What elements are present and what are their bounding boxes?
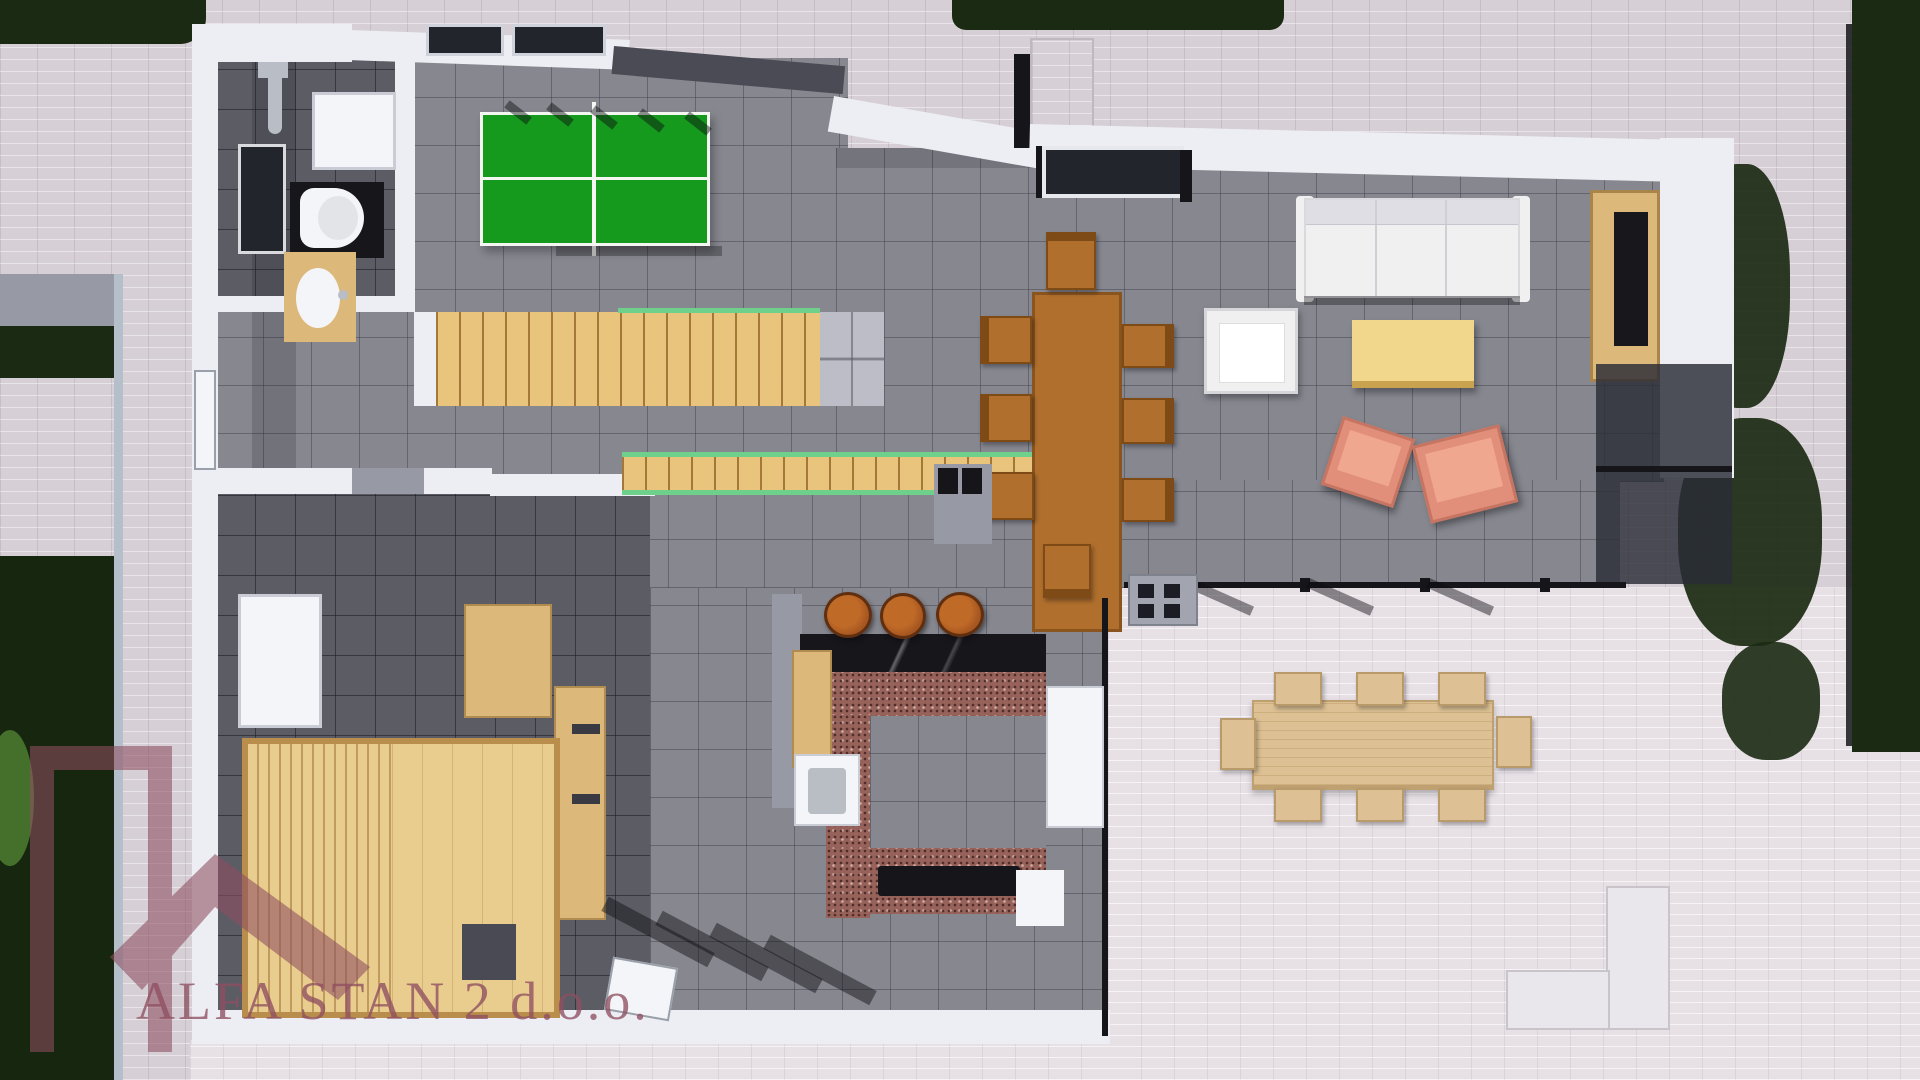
clerestory-window-1 <box>426 24 504 56</box>
kitchen-tall-cabinet <box>792 650 832 768</box>
outdoor-dining-table <box>1252 700 1494 790</box>
vanity-basin <box>296 268 340 328</box>
closet-handle-1 <box>572 724 600 734</box>
stair-glass-edge <box>618 308 820 313</box>
watermark-company-name: ALFA STAN 2 d.o.o. <box>136 970 650 1032</box>
bar-stool-3 <box>936 592 984 637</box>
tv-screen <box>1614 212 1648 346</box>
hedge-top-middle <box>952 0 1284 30</box>
kitchen-appliance-white <box>1016 870 1064 926</box>
vanity-faucet <box>338 290 348 300</box>
bar-counter <box>800 634 1046 672</box>
hedge-top-left <box>0 0 206 44</box>
left-door <box>194 370 216 470</box>
outdoor-stool-top-3 <box>1438 672 1486 706</box>
ivy-bush-3 <box>1722 642 1820 760</box>
fireplace-vent-1 <box>938 468 958 494</box>
block-wall-top <box>192 468 492 494</box>
pingpong-net <box>592 102 596 256</box>
outdoor-stool-bottom-2 <box>1356 788 1404 822</box>
bar-stool-2 <box>880 593 926 639</box>
dining-chair-right-2 <box>1122 398 1174 444</box>
toilet-seat <box>318 196 358 240</box>
floor-plan-render: ALFA STAN 2 d.o.o. <box>0 0 1920 1080</box>
outdoor-stool-bottom-1 <box>1274 788 1322 822</box>
pingpong-shadow <box>556 246 722 256</box>
outdoor-stool-left <box>1220 718 1256 770</box>
kitchen-counter-top <box>826 672 1046 716</box>
dining-chair-right-1 <box>1122 324 1174 368</box>
outdoor-stool-top-1 <box>1274 672 1322 706</box>
planter-bench-horizontal <box>1506 970 1610 1030</box>
skylight-endcap-right <box>1180 150 1192 202</box>
dining-chair-left-2 <box>980 394 1032 442</box>
dining-chair-bottom <box>1043 544 1091 598</box>
dining-chair-top <box>1046 232 1096 290</box>
coffee-table <box>1352 320 1474 388</box>
stair-landing <box>820 312 884 406</box>
outdoor-stool-top-2 <box>1356 672 1404 706</box>
kitchen-inner-floor <box>870 716 1046 850</box>
hedge-left <box>0 326 118 378</box>
clerestory-window-2 <box>512 24 606 56</box>
planter-bench-vertical <box>1606 886 1670 1030</box>
closet-handle-2 <box>572 794 600 804</box>
staircase <box>436 312 820 406</box>
kitchen-sink-basin <box>808 768 846 814</box>
washing-machine <box>312 92 396 170</box>
stairwell-glass-edge-1 <box>622 452 1042 457</box>
bathroom-mirror <box>238 144 286 254</box>
bar-stool-1 <box>824 592 872 638</box>
outdoor-stool-bottom-3 <box>1438 788 1486 822</box>
garden-wall-left <box>0 274 118 328</box>
glass-corner-frame <box>1596 466 1732 472</box>
bathroom-wall-right <box>395 56 415 312</box>
hedge-right-strip <box>1852 0 1920 752</box>
outdoor-unit <box>1128 574 1198 626</box>
entry-door-frame <box>1014 54 1030 148</box>
armchair <box>1204 308 1298 394</box>
shower-hose <box>268 64 282 134</box>
dining-chair-left-1 <box>980 316 1032 364</box>
cooktop <box>878 866 1020 896</box>
mudroom-cabinet-wood <box>464 604 552 718</box>
mudroom-cabinet-white <box>238 594 322 728</box>
fireplace-vent-2 <box>962 468 982 494</box>
fridge-column <box>1046 686 1104 828</box>
glass-corner-panel <box>1596 364 1732 584</box>
dining-chair-right-3 <box>1122 478 1174 522</box>
sofa <box>1304 198 1520 298</box>
stair-end-wall <box>414 312 436 406</box>
block-wall-top-gray <box>352 468 424 494</box>
sofa-shadow <box>1304 296 1520 305</box>
glass-post-4 <box>1540 578 1550 592</box>
skylight-window <box>1042 146 1184 198</box>
outdoor-stool-right <box>1496 716 1532 768</box>
fence-right <box>1846 24 1852 746</box>
